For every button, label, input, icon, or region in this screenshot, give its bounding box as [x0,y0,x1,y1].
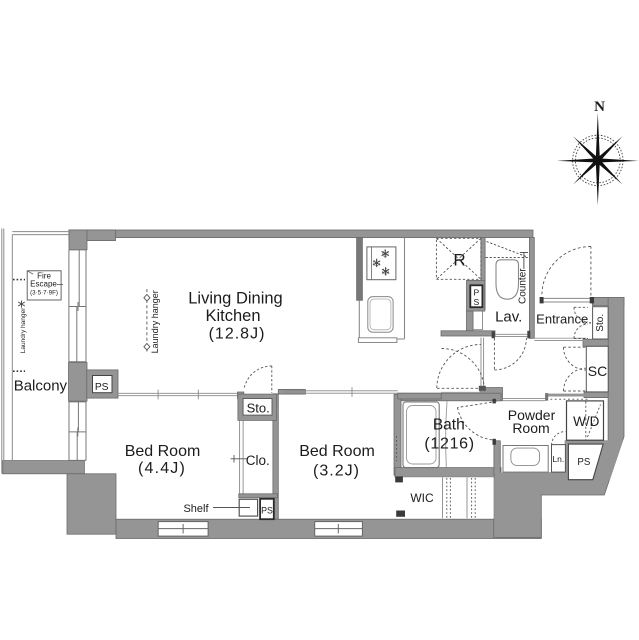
svg-text:(12.8J): (12.8J) [209,326,266,343]
svg-text:S: S [474,297,480,307]
svg-text:Balcony: Balcony [14,377,68,394]
svg-text:N: N [594,99,605,115]
svg-text:(3.2J): (3.2J) [313,463,360,480]
svg-text:Sto.: Sto. [247,400,270,415]
svg-text:Bed Room: Bed Room [125,443,201,460]
svg-text:Bath: Bath [433,417,465,434]
svg-text:PS: PS [577,457,590,468]
svg-text:Shelf: Shelf [183,503,209,515]
svg-text:Entrance.: Entrance. [536,312,592,327]
svg-text:Counter: Counter [517,268,528,304]
svg-text:(3·5·7·9F): (3·5·7·9F) [30,290,58,297]
svg-text:Laundry hanger: Laundry hanger [150,290,160,353]
svg-text:WIC: WIC [410,491,434,505]
svg-text:Living Dining: Living Dining [188,289,282,307]
svg-text:Room: Room [512,420,549,436]
svg-text:SC: SC [588,363,607,379]
svg-text:Bed Room: Bed Room [299,443,375,460]
svg-text:Ln.: Ln. [552,454,564,464]
svg-text:(1216): (1216) [424,436,474,453]
svg-text:Escape: Escape [30,279,57,288]
svg-text:Lav.: Lav. [495,308,522,325]
svg-text:Laundry hanger: Laundry hanger [20,307,27,353]
svg-text:(4.4J): (4.4J) [138,460,186,477]
svg-text:Clo.: Clo. [246,453,270,468]
svg-text:Sto.: Sto. [595,314,606,332]
svg-text:Kitchen: Kitchen [205,307,260,325]
svg-text:PS: PS [261,506,273,516]
svg-text:R: R [453,251,465,270]
svg-text:PS: PS [95,382,109,393]
